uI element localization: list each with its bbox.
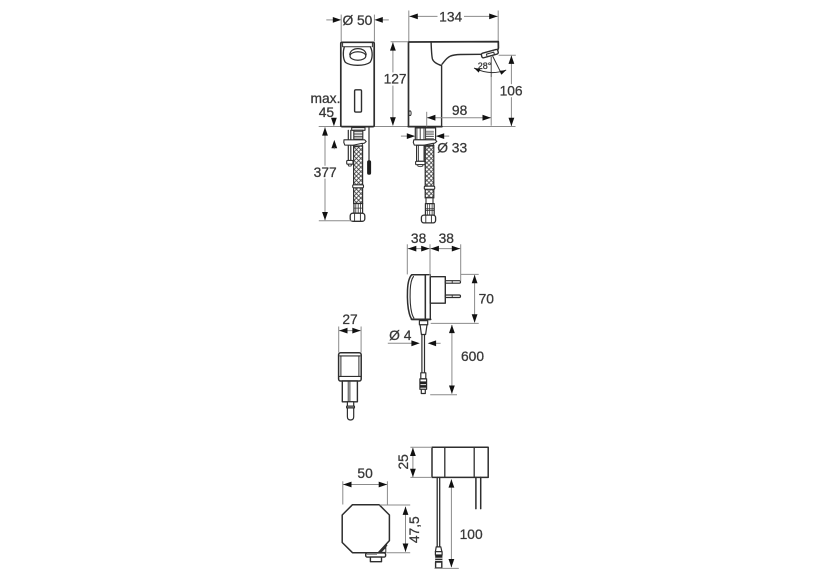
svg-text:Ø 4: Ø 4 [389, 328, 412, 343]
svg-text:47,5: 47,5 [407, 516, 422, 543]
svg-text:Ø 33: Ø 33 [437, 140, 467, 155]
svg-text:106: 106 [500, 83, 523, 98]
svg-text:600: 600 [461, 349, 484, 364]
svg-text:Ø 50: Ø 50 [342, 13, 372, 28]
svg-text:38: 38 [411, 231, 427, 246]
svg-text:max.: max. [311, 91, 341, 106]
svg-text:377: 377 [314, 165, 337, 180]
svg-text:70: 70 [479, 291, 495, 306]
svg-text:100: 100 [460, 527, 483, 542]
svg-text:28°: 28° [478, 61, 492, 71]
svg-text:25: 25 [396, 454, 411, 470]
svg-text:38: 38 [439, 231, 455, 246]
svg-text:50: 50 [357, 466, 373, 481]
svg-text:27: 27 [342, 312, 357, 327]
svg-text:127: 127 [384, 72, 407, 87]
svg-text:98: 98 [452, 103, 468, 118]
svg-text:134: 134 [439, 9, 462, 24]
